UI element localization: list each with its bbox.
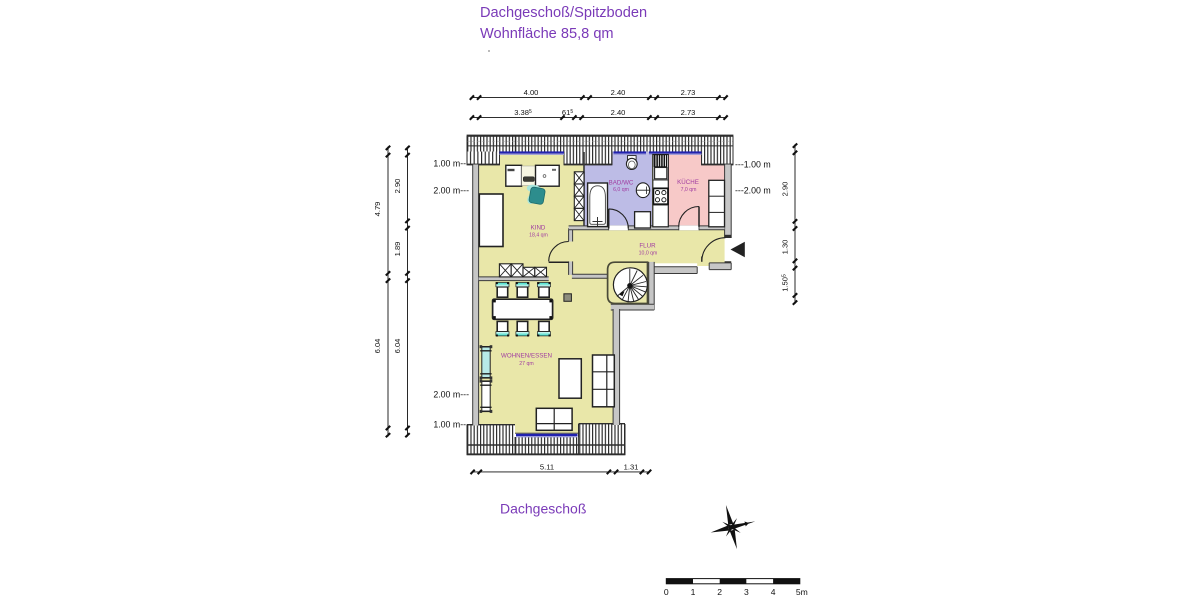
svg-text:1.00 m---: 1.00 m--- — [433, 419, 469, 429]
svg-text:4.00: 4.00 — [524, 88, 539, 97]
svg-text:Dachgeschoß: Dachgeschoß — [500, 501, 586, 517]
svg-text:Dachgeschoß/Spitzboden: Dachgeschoß/Spitzboden — [480, 5, 647, 21]
svg-text:WOHNEN/ESSEN: WOHNEN/ESSEN — [501, 353, 552, 360]
svg-text:2.73: 2.73 — [681, 108, 696, 117]
svg-text:KIND: KIND — [531, 225, 546, 232]
svg-text:10,0 qm: 10,0 qm — [639, 251, 658, 257]
svg-text:KÜCHE: KÜCHE — [677, 179, 699, 186]
svg-text:5m: 5m — [796, 587, 808, 597]
svg-text:---1.00 m: ---1.00 m — [735, 159, 771, 169]
svg-text:1.30: 1.30 — [781, 240, 790, 255]
svg-text:5.11: 5.11 — [540, 462, 554, 471]
svg-text:2.40: 2.40 — [611, 88, 626, 97]
svg-text:7,0 qm: 7,0 qm — [681, 187, 697, 193]
svg-text:0: 0 — [664, 587, 669, 597]
svg-text:2.90: 2.90 — [781, 182, 790, 197]
svg-text:6,0 qm: 6,0 qm — [613, 187, 629, 193]
svg-text:3: 3 — [744, 587, 749, 597]
svg-text:2.00 m---: 2.00 m--- — [433, 389, 469, 399]
svg-text:4.79: 4.79 — [373, 202, 382, 217]
svg-text:27 qm: 27 qm — [519, 361, 533, 367]
svg-text:2.90: 2.90 — [393, 179, 402, 194]
svg-text:BAD/WC: BAD/WC — [609, 180, 634, 187]
svg-text:2.00 m---: 2.00 m--- — [433, 185, 469, 195]
svg-text:2.40: 2.40 — [611, 108, 626, 117]
svg-text:1.89: 1.89 — [393, 242, 402, 257]
svg-text:1.31: 1.31 — [624, 462, 639, 471]
svg-text:6.04: 6.04 — [373, 339, 382, 354]
svg-text:2: 2 — [717, 587, 722, 597]
svg-text:4: 4 — [771, 587, 776, 597]
svg-text:---2.00 m: ---2.00 m — [735, 185, 771, 195]
svg-text:1.00 m---: 1.00 m--- — [433, 158, 469, 168]
svg-text:6.04: 6.04 — [393, 339, 402, 354]
svg-text:18,4 qm: 18,4 qm — [529, 233, 548, 239]
svg-text:1: 1 — [691, 587, 696, 597]
svg-text:2.73: 2.73 — [681, 88, 696, 97]
svg-text:Wohnfläche 85,8 qm: Wohnfläche 85,8 qm — [480, 26, 614, 42]
svg-text:FLUR: FLUR — [639, 243, 656, 250]
